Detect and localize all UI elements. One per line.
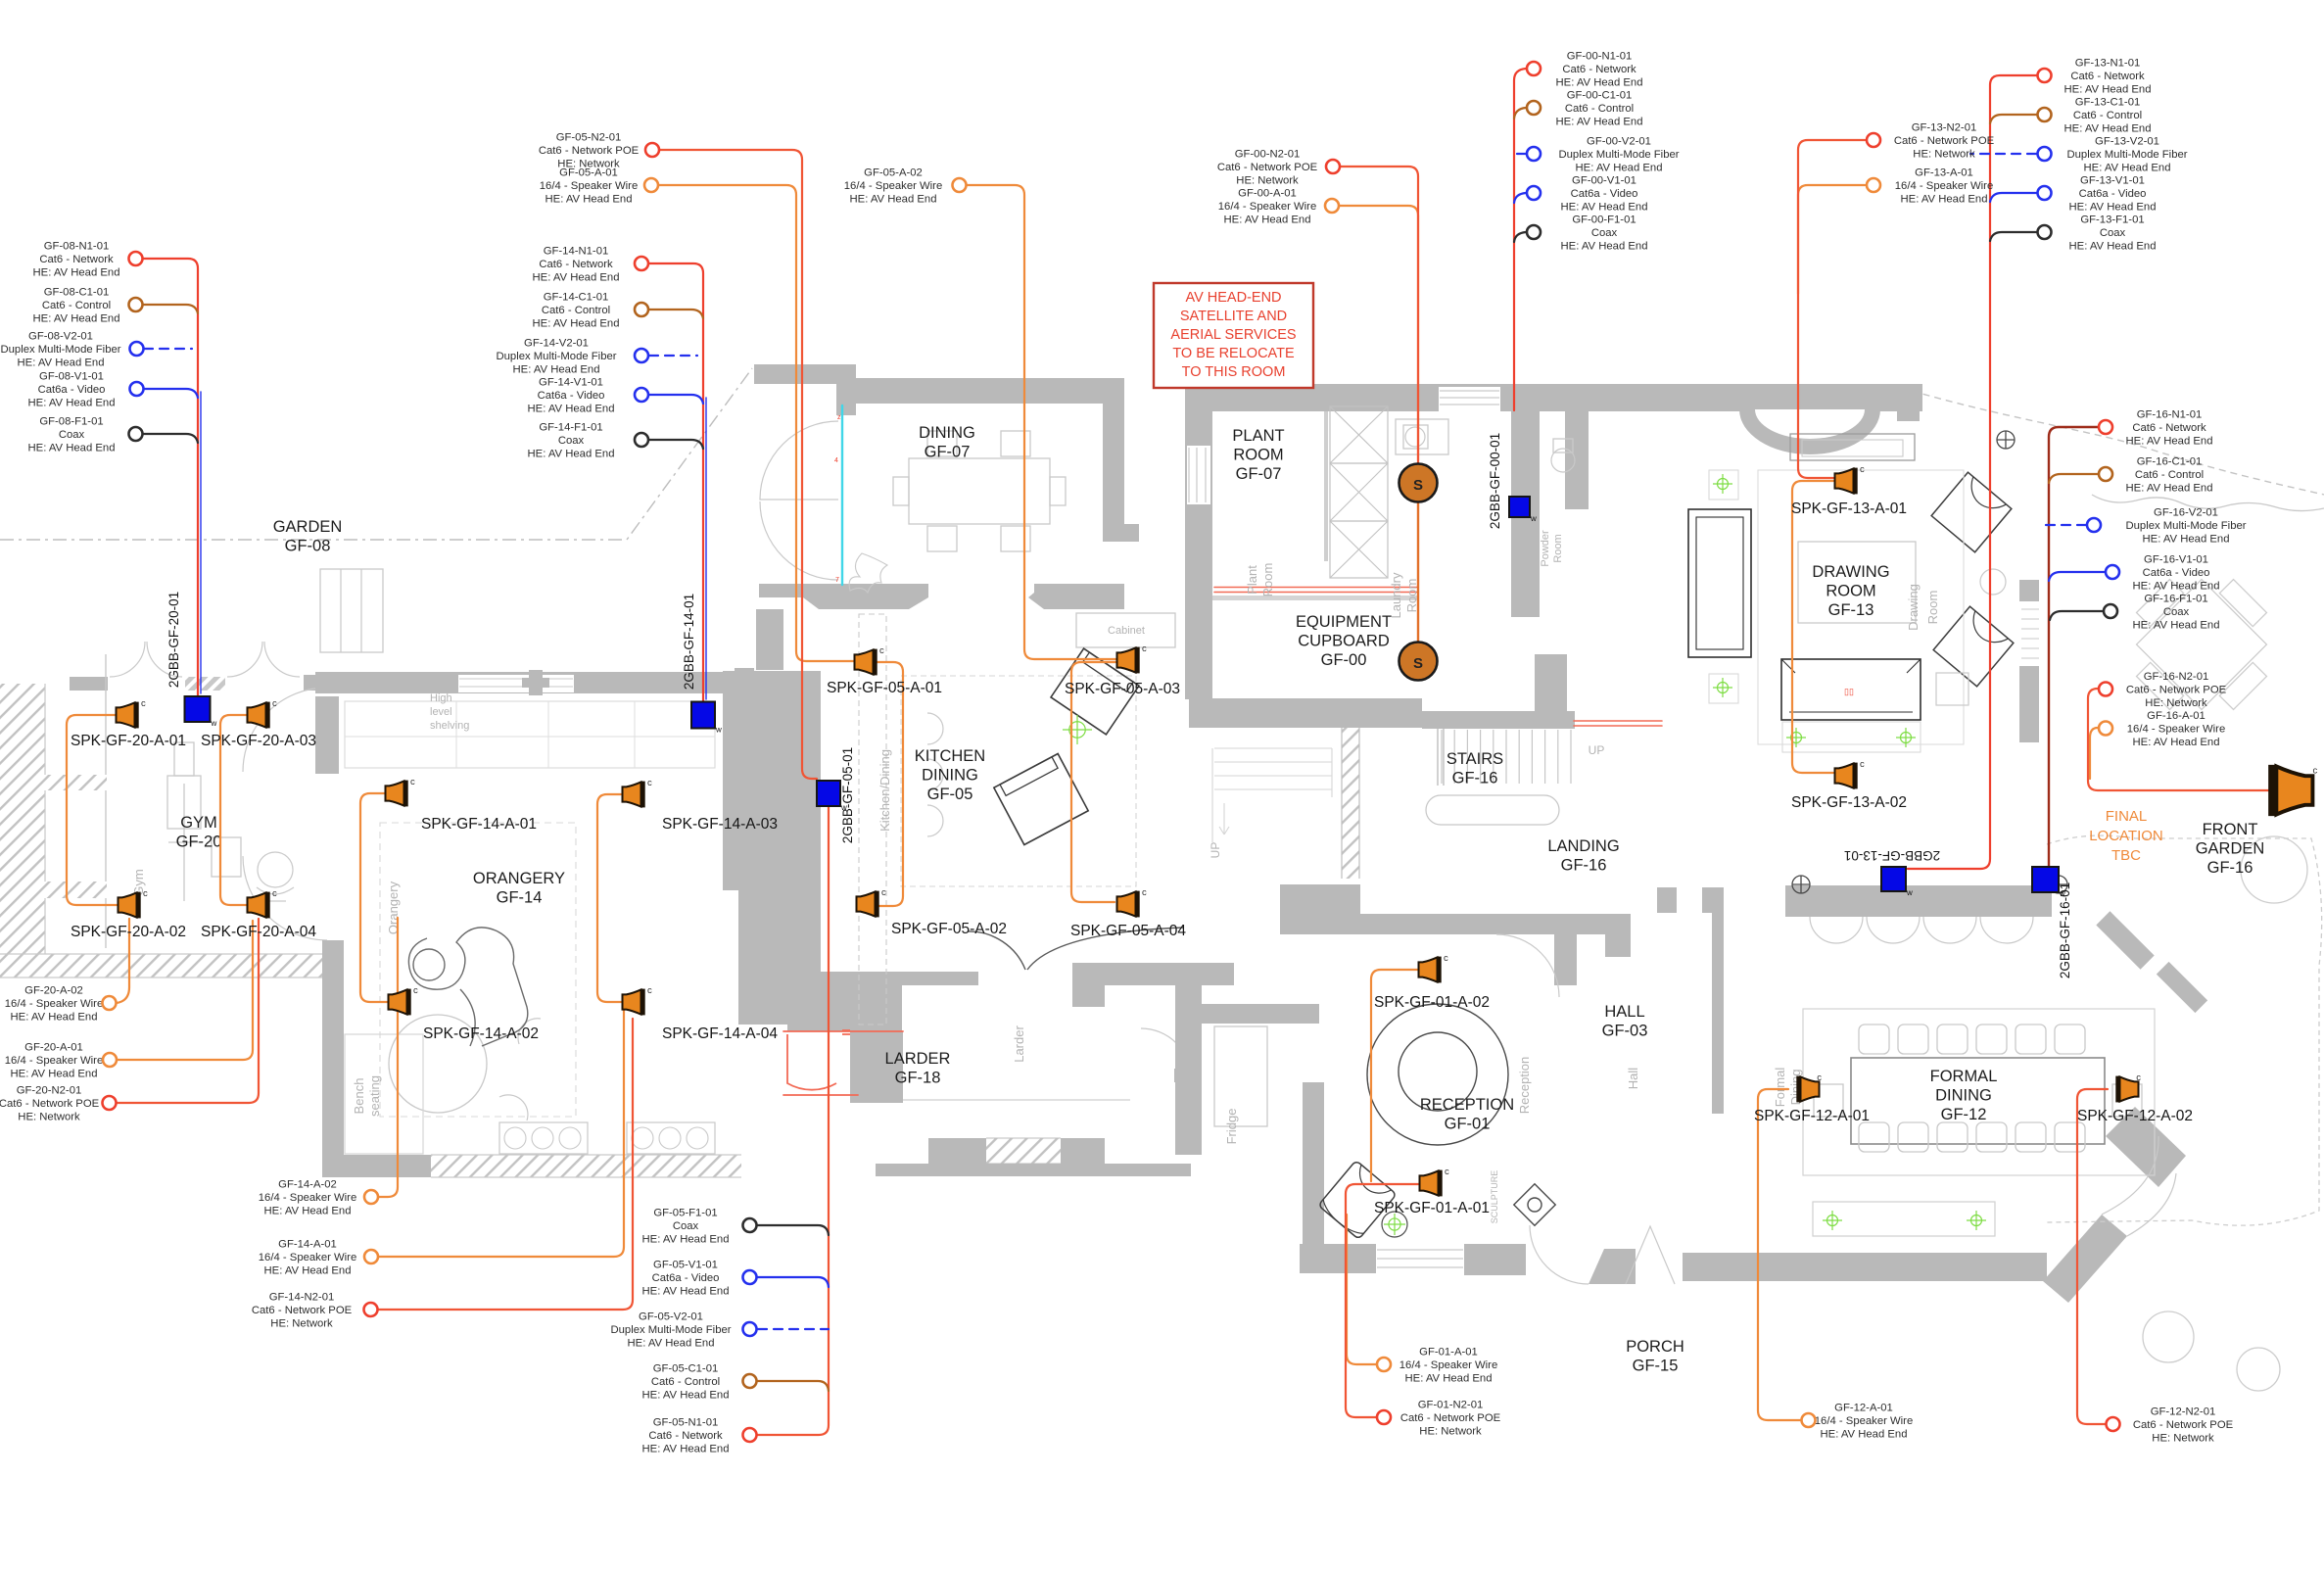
svg-text:UP: UP — [1209, 842, 1222, 859]
svg-text:GF-14: GF-14 — [497, 889, 543, 907]
svg-text:FRONT: FRONT — [2203, 821, 2258, 838]
svg-text:SPK-GF-14-A-02: SPK-GF-14-A-02 — [423, 1025, 539, 1042]
svg-text:Duplex Multi-Mode Fiber: Duplex Multi-Mode Fiber — [610, 1324, 731, 1336]
svg-text:HE: AV Head End: HE: AV Head End — [528, 404, 615, 415]
svg-text:Cat6 - Network: Cat6 - Network — [648, 1430, 723, 1442]
svg-text:16/4 - Speaker Wire: 16/4 - Speaker Wire — [259, 1252, 356, 1263]
svg-text:HE: AV Head End: HE: AV Head End — [1556, 77, 1643, 89]
svg-text:Duplex Multi-Mode Fiber: Duplex Multi-Mode Fiber — [2066, 149, 2187, 161]
svg-text:Coax: Coax — [673, 1220, 699, 1232]
svg-text:HE: AV Head End: HE: AV Head End — [1576, 163, 1663, 174]
svg-text:Coax: Coax — [59, 429, 85, 441]
svg-text:STAIRS: STAIRS — [1447, 750, 1503, 768]
svg-text:AV HEAD-END: AV HEAD-END — [1185, 290, 1281, 306]
svg-text:SATELLITE AND: SATELLITE AND — [1180, 309, 1287, 324]
svg-text:AERIAL SERVICES: AERIAL SERVICES — [1170, 327, 1296, 343]
svg-text:HE: AV Head End: HE: AV Head End — [2126, 483, 2213, 495]
svg-text:7: 7 — [835, 577, 839, 584]
svg-text:Coax: Coax — [2163, 606, 2190, 618]
svg-text:Fridge: Fridge — [1224, 1109, 1239, 1145]
svg-text:Cat6a - Video: Cat6a - Video — [1571, 188, 1638, 200]
svg-text:SPK-GF-14-A-01: SPK-GF-14-A-01 — [421, 816, 537, 833]
svg-text:GF-00-F1-01: GF-00-F1-01 — [1572, 214, 1636, 226]
svg-text:16/4 - Speaker Wire: 16/4 - Speaker Wire — [844, 180, 942, 192]
svg-text:4: 4 — [834, 457, 838, 464]
svg-text:GYM: GYM — [180, 814, 217, 832]
svg-text:SPK-GF-20-A-04: SPK-GF-20-A-04 — [201, 924, 316, 940]
svg-text:HE: AV Head End: HE: AV Head End — [2133, 620, 2220, 632]
svg-text:GF-07: GF-07 — [925, 444, 971, 461]
svg-text:HE: AV Head End: HE: AV Head End — [642, 1444, 730, 1455]
svg-text:c: c — [272, 888, 277, 899]
svg-text:GF-01: GF-01 — [1445, 1116, 1491, 1133]
svg-text:HE: AV Head End: HE: AV Head End — [1405, 1373, 1493, 1385]
svg-text:GF-13: GF-13 — [1828, 601, 1874, 619]
svg-text:SPK-GF-20-A-02: SPK-GF-20-A-02 — [71, 924, 186, 940]
svg-text:HE: AV Head End: HE: AV Head End — [545, 194, 633, 206]
svg-text:GF-13-V1-01: GF-13-V1-01 — [2080, 175, 2145, 187]
svg-text:GF-05-F1-01: GF-05-F1-01 — [653, 1208, 717, 1219]
svg-text:GF-16-A-01: GF-16-A-01 — [2147, 710, 2205, 722]
svg-text:Duplex Multi-Mode Fiber: Duplex Multi-Mode Fiber — [2125, 520, 2246, 532]
svg-text:Coax: Coax — [2100, 227, 2126, 239]
svg-text:FORMAL: FORMAL — [1930, 1068, 1998, 1085]
svg-text:S: S — [1413, 655, 1423, 672]
svg-text:GF-05: GF-05 — [927, 786, 973, 803]
svg-text:Coax: Coax — [558, 435, 585, 447]
svg-text:KITCHEN: KITCHEN — [915, 747, 985, 765]
svg-text:HE: AV Head End: HE: AV Head End — [533, 272, 620, 284]
svg-text:SCULPTURE: SCULPTURE — [1490, 1170, 1499, 1224]
svg-text:GF-13-N1-01: GF-13-N1-01 — [2075, 58, 2141, 70]
svg-text:TBC: TBC — [2111, 847, 2141, 864]
svg-text:HE: AV Head End: HE: AV Head End — [2064, 84, 2152, 96]
svg-text:GF-00: GF-00 — [1321, 651, 1367, 669]
svg-text:HE: AV Head End: HE: AV Head End — [1561, 241, 1648, 253]
svg-text:c: c — [1860, 759, 1865, 770]
svg-text:GF-14-V2-01: GF-14-V2-01 — [524, 338, 589, 350]
svg-text:HE: AV Head End: HE: AV Head End — [2064, 123, 2152, 135]
svg-text:w: w — [1906, 888, 1913, 897]
svg-text:GF-16: GF-16 — [1561, 857, 1607, 875]
svg-text:Cat6 - Network: Cat6 - Network — [539, 259, 613, 270]
svg-text:16/4 - Speaker Wire: 16/4 - Speaker Wire — [1399, 1359, 1497, 1371]
svg-text:HE: AV Head End: HE: AV Head End — [18, 357, 105, 369]
svg-text:c: c — [1445, 1167, 1449, 1177]
svg-text:GF-13-F1-01: GF-13-F1-01 — [2080, 214, 2144, 226]
svg-text:GF-00-A-01: GF-00-A-01 — [1238, 188, 1297, 200]
svg-text:Duplex Multi-Mode Fiber: Duplex Multi-Mode Fiber — [496, 351, 616, 362]
svg-text:2GBB-GF-14-01: 2GBB-GF-14-01 — [682, 594, 696, 690]
svg-text:HE: AV Head End: HE: AV Head End — [642, 1234, 730, 1246]
svg-text:GF-15: GF-15 — [1633, 1358, 1679, 1375]
svg-text:Bench: Bench — [352, 1078, 366, 1115]
svg-text:2GBB-GF-20-01: 2GBB-GF-20-01 — [166, 592, 181, 688]
svg-text:c: c — [2313, 765, 2318, 776]
svg-text:Hall: Hall — [1626, 1068, 1640, 1090]
svg-text:RECEPTION: RECEPTION — [1420, 1096, 1514, 1114]
svg-text:Cat6 - Control: Cat6 - Control — [2073, 110, 2142, 121]
svg-text:DRAWING: DRAWING — [1812, 563, 1889, 581]
svg-text:w: w — [715, 726, 722, 735]
svg-text:SPK-GF-05-A-01: SPK-GF-05-A-01 — [827, 680, 942, 696]
svg-text:HE: AV Head End: HE: AV Head End — [2069, 241, 2157, 253]
svg-text:16/4 - Speaker Wire: 16/4 - Speaker Wire — [1815, 1415, 1913, 1427]
svg-text:GF-08-N1-01: GF-08-N1-01 — [44, 241, 110, 253]
svg-text:HE: AV Head End: HE: AV Head End — [1561, 202, 1648, 214]
svg-text:HE: AV Head End: HE: AV Head End — [264, 1206, 352, 1217]
svg-text:GF-08-C1-01: GF-08-C1-01 — [44, 287, 110, 299]
svg-text:DINING: DINING — [922, 767, 978, 785]
svg-text:SPK-GF-20-A-03: SPK-GF-20-A-03 — [201, 733, 316, 749]
svg-text:Drawing: Drawing — [1906, 584, 1921, 631]
svg-text:Cat6 - Network: Cat6 - Network — [2132, 422, 2206, 434]
svg-text:c: c — [881, 887, 886, 898]
svg-text:LANDING: LANDING — [1547, 837, 1619, 855]
svg-text:Cat6 - Network POE: Cat6 - Network POE — [1217, 162, 1318, 173]
svg-text:HE: AV Head End: HE: AV Head End — [513, 364, 600, 376]
svg-text:Reception: Reception — [1517, 1057, 1532, 1115]
svg-text:c: c — [410, 777, 415, 787]
svg-text:GF-14-N2-01: GF-14-N2-01 — [269, 1292, 335, 1304]
svg-text:GF-20-A-01: GF-20-A-01 — [24, 1042, 83, 1054]
svg-text:Cat6 - Network POE: Cat6 - Network POE — [2126, 685, 2227, 696]
svg-text:HE: AV Head End: HE: AV Head End — [11, 1069, 98, 1080]
svg-text:GF-05-V2-01: GF-05-V2-01 — [639, 1311, 703, 1323]
svg-text:Cat6 - Network: Cat6 - Network — [1562, 64, 1636, 75]
svg-text:Cat6 - Network POE: Cat6 - Network POE — [1400, 1412, 1501, 1424]
svg-text:SPK-GF-12-A-02: SPK-GF-12-A-02 — [2077, 1108, 2193, 1124]
svg-text:GF-05-N2-01: GF-05-N2-01 — [556, 132, 622, 144]
svg-text:HE: AV Head End: HE: AV Head End — [1901, 194, 1988, 206]
svg-text:Cat6a - Video: Cat6a - Video — [38, 384, 106, 396]
svg-text:c: c — [1142, 643, 1147, 654]
svg-text:HE: AV Head End: HE: AV Head End — [2133, 581, 2220, 593]
svg-text:GF-05-A-02: GF-05-A-02 — [864, 167, 923, 179]
svg-text:GF-00-N1-01: GF-00-N1-01 — [1567, 51, 1633, 63]
svg-text:c: c — [1444, 953, 1448, 964]
svg-text:HE: AV Head End: HE: AV Head End — [33, 313, 120, 325]
svg-text:Cat6a - Video: Cat6a - Video — [652, 1272, 720, 1284]
svg-text:c: c — [647, 778, 652, 788]
svg-text:HE: AV Head End: HE: AV Head End — [533, 318, 620, 330]
svg-text:Kitchen/Dining: Kitchen/Dining — [877, 749, 892, 832]
svg-text:Cat6a - Video: Cat6a - Video — [538, 390, 605, 402]
svg-text:GF-16-N1-01: GF-16-N1-01 — [2137, 409, 2203, 421]
svg-text:GF-08-V1-01: GF-08-V1-01 — [39, 371, 104, 383]
svg-text:c: c — [413, 985, 418, 996]
svg-text:GF-16: GF-16 — [2207, 859, 2253, 877]
svg-text:GF-16-F1-01: GF-16-F1-01 — [2144, 594, 2207, 605]
svg-text:GF-16-V2-01: GF-16-V2-01 — [2154, 507, 2218, 519]
svg-text:Duplex Multi-Mode Fiber: Duplex Multi-Mode Fiber — [0, 344, 120, 356]
svg-text:HE: AV Head End: HE: AV Head End — [11, 1012, 98, 1024]
svg-text:High: High — [430, 692, 452, 704]
svg-text:16/4 - Speaker Wire: 16/4 - Speaker Wire — [1895, 180, 1993, 192]
svg-text:GF-14-F1-01: GF-14-F1-01 — [539, 422, 602, 434]
svg-text:Cat6 - Control: Cat6 - Control — [1565, 103, 1634, 115]
svg-text:HE: AV Head End: HE: AV Head End — [264, 1265, 352, 1277]
svg-text:DINING: DINING — [1935, 1087, 1992, 1105]
svg-text:GF-18: GF-18 — [895, 1070, 941, 1087]
svg-text:GF-16: GF-16 — [1452, 770, 1498, 787]
svg-text:GF-12-A-01: GF-12-A-01 — [1834, 1403, 1893, 1414]
svg-text:Cat6 - Control: Cat6 - Control — [542, 305, 610, 316]
svg-text:Room: Room — [1552, 534, 1564, 562]
svg-text:GARDEN: GARDEN — [2196, 840, 2265, 858]
svg-text:GF-14-N1-01: GF-14-N1-01 — [544, 246, 609, 258]
svg-text:HE: Network: HE: Network — [18, 1112, 80, 1123]
svg-text:SPK-GF-12-A-01: SPK-GF-12-A-01 — [1754, 1108, 1870, 1124]
svg-text:HE: AV Head End: HE: AV Head End — [28, 443, 116, 454]
svg-text:2GBB-GF-16-01: 2GBB-GF-16-01 — [2058, 882, 2072, 978]
svg-text:HE: AV Head End: HE: AV Head End — [628, 1338, 715, 1350]
svg-text:z: z — [837, 414, 841, 421]
svg-text:c: c — [1142, 887, 1147, 898]
svg-text:HE: AV Head End: HE: AV Head End — [2084, 163, 2171, 174]
svg-text:c: c — [1860, 464, 1865, 475]
svg-text:Coax: Coax — [1591, 227, 1618, 239]
svg-text:GF-16-C1-01: GF-16-C1-01 — [2137, 456, 2203, 468]
svg-text:Cat6 - Network POE: Cat6 - Network POE — [252, 1305, 353, 1316]
svg-text:HE: AV Head End: HE: AV Head End — [1556, 117, 1643, 128]
svg-text:Cat6 - Network POE: Cat6 - Network POE — [0, 1098, 100, 1110]
svg-text:PORCH: PORCH — [1626, 1338, 1684, 1356]
svg-text:GF-01-A-01: GF-01-A-01 — [1419, 1347, 1478, 1358]
svg-text:GF-00-V2-01: GF-00-V2-01 — [1587, 136, 1651, 148]
svg-text:GF-00-V1-01: GF-00-V1-01 — [1572, 175, 1636, 187]
svg-text:LARDER: LARDER — [885, 1050, 951, 1068]
svg-text:SPK-GF-05-A-03: SPK-GF-05-A-03 — [1065, 681, 1180, 697]
svg-text:GF-14-A-01: GF-14-A-01 — [278, 1239, 337, 1251]
svg-text:GF-16-V1-01: GF-16-V1-01 — [2144, 554, 2208, 566]
svg-text:S: S — [1413, 477, 1423, 494]
svg-text:GF-20: GF-20 — [176, 834, 222, 851]
svg-text:SPK-GF-14-A-04: SPK-GF-14-A-04 — [662, 1025, 778, 1042]
svg-text:Cabinet: Cabinet — [1108, 625, 1145, 637]
svg-text:GF-13-V2-01: GF-13-V2-01 — [2095, 136, 2159, 148]
svg-text:c: c — [879, 645, 884, 656]
svg-text:HE: AV Head End: HE: AV Head End — [1224, 214, 1311, 226]
svg-text:HE: AV Head End: HE: AV Head End — [528, 449, 615, 460]
svg-text:16/4 - Speaker Wire: 16/4 - Speaker Wire — [5, 1055, 103, 1067]
svg-text:UP: UP — [1589, 743, 1605, 757]
svg-text:Room: Room — [1260, 563, 1275, 597]
svg-text:GF-07: GF-07 — [1236, 465, 1282, 483]
svg-text:Formal: Formal — [1773, 1068, 1787, 1108]
svg-text:c: c — [647, 985, 652, 996]
svg-text:Cat6 - Control: Cat6 - Control — [651, 1376, 720, 1388]
svg-text:GF-13-N2-01: GF-13-N2-01 — [1912, 122, 1977, 134]
svg-text:Cat6a - Video: Cat6a - Video — [2143, 567, 2210, 579]
svg-text:Cat6 - Network POE: Cat6 - Network POE — [1894, 135, 1995, 147]
svg-text:FINAL: FINAL — [2106, 808, 2148, 825]
svg-text:HE: AV Head End: HE: AV Head End — [2133, 737, 2220, 748]
svg-text:SPK-GF-01-A-01: SPK-GF-01-A-01 — [1374, 1200, 1490, 1216]
svg-text:w: w — [211, 719, 217, 728]
svg-text:GF-16-N2-01: GF-16-N2-01 — [2144, 671, 2209, 683]
svg-text:Plant: Plant — [1245, 565, 1259, 595]
svg-text:▯▯: ▯▯ — [1844, 687, 1854, 696]
svg-text:HALL: HALL — [1604, 1003, 1644, 1021]
svg-text:HE: Network: HE: Network — [1419, 1426, 1482, 1438]
svg-text:GF-08-V2-01: GF-08-V2-01 — [28, 331, 93, 343]
svg-text:HE: AV Head End: HE: AV Head End — [2126, 436, 2213, 448]
svg-text:GF-00-C1-01: GF-00-C1-01 — [1567, 90, 1633, 102]
svg-text:GF-00-N2-01: GF-00-N2-01 — [1235, 149, 1301, 161]
svg-text:GF-05-C1-01: GF-05-C1-01 — [653, 1363, 719, 1375]
svg-text:EQUIPMENT: EQUIPMENT — [1296, 613, 1392, 631]
svg-text:shelving: shelving — [430, 720, 469, 732]
svg-text:c: c — [143, 888, 148, 899]
svg-text:16/4 - Speaker Wire: 16/4 - Speaker Wire — [259, 1192, 356, 1204]
svg-text:Duplex Multi-Mode Fiber: Duplex Multi-Mode Fiber — [1558, 149, 1679, 161]
svg-text:LOCATION: LOCATION — [2089, 828, 2163, 844]
svg-text:HE: Network: HE: Network — [1236, 175, 1299, 187]
svg-text:HE: AV Head End: HE: AV Head End — [642, 1390, 730, 1402]
svg-text:CUPBOARD: CUPBOARD — [1298, 633, 1390, 650]
svg-text:TO BE RELOCATE: TO BE RELOCATE — [1172, 346, 1295, 361]
svg-text:Cat6 - Network POE: Cat6 - Network POE — [2133, 1419, 2234, 1431]
svg-text:GF-14-V1-01: GF-14-V1-01 — [539, 377, 603, 389]
svg-text:Powder: Powder — [1540, 530, 1551, 567]
svg-text:GF-01-N2-01: GF-01-N2-01 — [1418, 1400, 1484, 1411]
svg-text:16/4 - Speaker Wire: 16/4 - Speaker Wire — [2127, 724, 2225, 736]
svg-text:GF-05-N1-01: GF-05-N1-01 — [653, 1417, 719, 1429]
svg-text:GF-14-A-02: GF-14-A-02 — [278, 1179, 337, 1191]
svg-text:HE: AV Head End: HE: AV Head End — [2069, 202, 2157, 214]
svg-text:SPK-GF-20-A-01: SPK-GF-20-A-01 — [71, 733, 186, 749]
svg-text:Cat6 - Network: Cat6 - Network — [2070, 71, 2145, 82]
svg-text:GF-12-N2-01: GF-12-N2-01 — [2151, 1406, 2216, 1418]
svg-text:GF-13-C1-01: GF-13-C1-01 — [2075, 97, 2141, 109]
svg-text:DINING: DINING — [919, 424, 975, 442]
svg-text:16/4 - Speaker Wire: 16/4 - Speaker Wire — [5, 998, 103, 1010]
svg-text:ORANGERY: ORANGERY — [473, 870, 565, 887]
svg-text:level: level — [430, 706, 452, 718]
svg-text:c: c — [272, 698, 277, 709]
svg-text:Larder: Larder — [1012, 1025, 1026, 1063]
svg-text:GF-20-N2-01: GF-20-N2-01 — [17, 1085, 82, 1097]
svg-text:Laundry: Laundry — [1389, 572, 1403, 618]
svg-text:w: w — [1530, 514, 1537, 523]
svg-text:Cat6 - Network: Cat6 - Network — [39, 254, 114, 265]
svg-text:16/4 - Speaker Wire: 16/4 - Speaker Wire — [1218, 201, 1316, 213]
svg-text:SPK-GF-14-A-03: SPK-GF-14-A-03 — [662, 816, 778, 833]
svg-text:GF-03: GF-03 — [1602, 1023, 1648, 1040]
svg-text:c: c — [2136, 1072, 2141, 1083]
svg-text:GF-08-F1-01: GF-08-F1-01 — [39, 416, 103, 428]
svg-text:HE: Network: HE: Network — [2152, 1433, 2214, 1445]
svg-text:Room: Room — [1925, 591, 1940, 625]
svg-text:HE: AV Head End: HE: AV Head End — [2143, 534, 2230, 546]
svg-text:HE: Network: HE: Network — [1913, 149, 1975, 161]
svg-text:c: c — [1817, 1072, 1822, 1083]
svg-text:SPK-GF-01-A-02: SPK-GF-01-A-02 — [1374, 994, 1490, 1011]
svg-text:Cat6a - Video: Cat6a - Video — [2079, 188, 2147, 200]
svg-text:HE: Network: HE: Network — [270, 1318, 333, 1330]
svg-text:ROOM: ROOM — [1826, 583, 1875, 600]
svg-text:HE: AV Head End: HE: AV Head End — [33, 267, 120, 279]
svg-text:Cat6 - Network POE: Cat6 - Network POE — [539, 145, 640, 157]
svg-text:GF-05-A-01: GF-05-A-01 — [559, 167, 618, 179]
svg-text:GF-12: GF-12 — [1941, 1106, 1987, 1123]
svg-text:HE: AV Head End: HE: AV Head End — [642, 1286, 730, 1298]
svg-text:GF-05-V1-01: GF-05-V1-01 — [653, 1260, 718, 1271]
svg-text:2GBB-GF-13-01: 2GBB-GF-13-01 — [1844, 848, 1940, 863]
svg-text:2GBB-GF-00-01: 2GBB-GF-00-01 — [1488, 433, 1502, 529]
svg-text:SPK-GF-05-A-04: SPK-GF-05-A-04 — [1070, 923, 1186, 939]
svg-text:2GBB-GF-05-01: 2GBB-GF-05-01 — [840, 747, 855, 843]
svg-text:TO THIS ROOM: TO THIS ROOM — [1182, 364, 1286, 380]
svg-text:GF-14-C1-01: GF-14-C1-01 — [544, 292, 609, 304]
svg-text:GARDEN: GARDEN — [273, 518, 343, 536]
svg-text:SPK-GF-05-A-02: SPK-GF-05-A-02 — [891, 921, 1007, 937]
svg-text:HE: AV Head End: HE: AV Head End — [1821, 1429, 1908, 1441]
svg-text:GF-20-A-02: GF-20-A-02 — [24, 985, 83, 997]
svg-text:SPK-GF-13-A-02: SPK-GF-13-A-02 — [1791, 794, 1907, 811]
svg-text:PLANT: PLANT — [1232, 427, 1284, 445]
svg-text:Cat6 - Control: Cat6 - Control — [42, 300, 111, 311]
svg-text:Cat6 - Control: Cat6 - Control — [2135, 469, 2204, 481]
svg-text:c: c — [141, 698, 146, 709]
svg-text:HE: AV Head End: HE: AV Head End — [850, 194, 937, 206]
svg-text:HE: AV Head End: HE: AV Head End — [28, 398, 116, 409]
svg-text:SPK-GF-13-A-01: SPK-GF-13-A-01 — [1791, 500, 1907, 517]
svg-text:HE: Network: HE: Network — [2145, 697, 2207, 709]
svg-text:GF-13-A-01: GF-13-A-01 — [1915, 167, 1973, 179]
svg-text:GF-08: GF-08 — [285, 538, 331, 555]
svg-text:16/4 - Speaker Wire: 16/4 - Speaker Wire — [540, 180, 638, 192]
svg-text:Room: Room — [1404, 579, 1419, 613]
svg-text:seating: seating — [367, 1075, 382, 1117]
svg-text:ROOM: ROOM — [1233, 447, 1283, 464]
